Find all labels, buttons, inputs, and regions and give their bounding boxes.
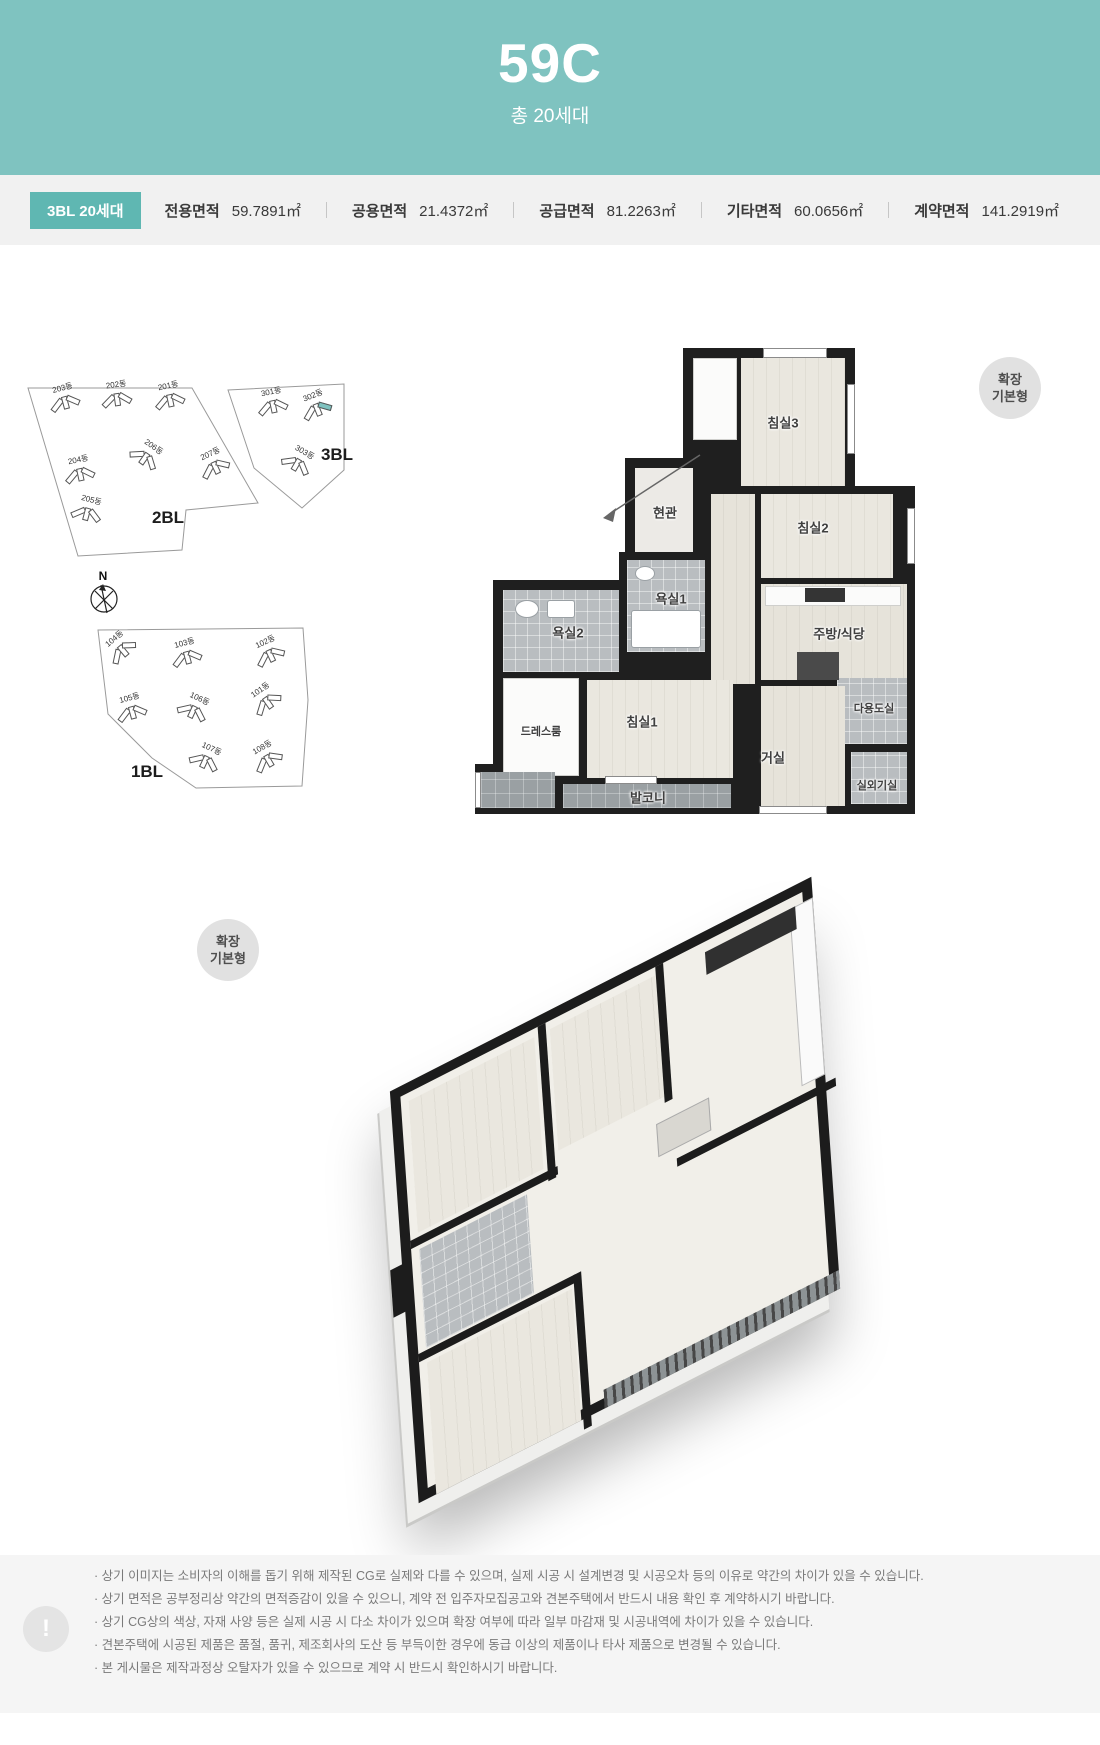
room-label-entrance: 현관 <box>653 503 677 522</box>
area-item: 기타면적 60.0656㎡ <box>727 200 863 221</box>
floor-plan-3d <box>330 930 890 1450</box>
area-item: 계약면적 141.2919㎡ <box>914 200 1059 221</box>
room-label-utility: 다용도실 <box>854 700 894 716</box>
iso-plane <box>390 877 840 1504</box>
building-104: 104동 <box>100 627 145 672</box>
area-label: 기타면적 <box>727 200 782 221</box>
room-label-living: 거실 <box>761 748 785 767</box>
building-202: 202동 <box>99 381 137 415</box>
building-206: 206동 <box>123 436 168 480</box>
unit-header: 59C 총 20세대 <box>0 0 1100 175</box>
building-203: 203동 <box>46 382 87 420</box>
room-bedroom1 <box>587 680 733 778</box>
unit-total-households: 총 20세대 <box>0 101 1100 128</box>
block-label-2bl: 2BL <box>152 508 184 528</box>
area-summary-bar: 3BL 20세대 전용면적 59.7891㎡ 공용면적 21.4372㎡ 공급면… <box>0 175 1100 245</box>
toilet <box>635 566 655 581</box>
disclaimer-footer: ! · 상기 이미지는 소비자의 이해를 돕기 위해 제작된 CG로 실제와 다… <box>0 1555 1100 1713</box>
window <box>759 806 827 814</box>
room-label-bedroom1: 침실1 <box>626 712 657 731</box>
disclaimer-note: · 상기 면적은 공부정리상 약간의 면적증감이 있을 수 있으니, 계약 전 … <box>94 1588 924 1611</box>
room-label-bedroom3: 침실3 <box>767 413 798 432</box>
building-101: 101동 <box>245 679 290 723</box>
iso-counter <box>705 906 797 975</box>
room-label-bedroom2: 침실2 <box>797 518 828 537</box>
window <box>907 508 915 564</box>
unit-type-title: 59C <box>0 0 1100 91</box>
building-205: 205동 <box>68 494 109 532</box>
room-label-kitchen: 주방/식당 <box>813 624 864 643</box>
divider <box>701 202 702 218</box>
room-label-bathroom1: 욕실1 <box>655 589 686 608</box>
area-item: 전용면적 59.7891㎡ <box>165 200 301 221</box>
building-108: 108동 <box>247 738 291 781</box>
building-204: 204동 <box>61 455 100 491</box>
building-107: 107동 <box>184 740 227 782</box>
building-103: 103동 <box>168 637 209 675</box>
building-302-highlighted: 302동 <box>297 388 340 429</box>
building-301: 301동 <box>254 387 293 423</box>
area-value: 21.4372㎡ <box>419 200 488 221</box>
building-201: 201동 <box>151 381 190 417</box>
area-label: 전용면적 <box>165 200 220 221</box>
window <box>847 384 855 454</box>
window <box>475 772 481 808</box>
compass-north-label: N <box>99 569 108 583</box>
disclaimer-note: · 견본주택에 시공된 제품은 품절, 품귀, 제조회사의 도산 등 부득이한 … <box>94 1634 924 1657</box>
iso-balcony-railing <box>604 1270 841 1408</box>
area-label: 공용면적 <box>352 200 407 221</box>
plan-type-badge-2d: 확장 기본형 <box>979 357 1041 419</box>
iso-entry-door <box>390 1263 407 1317</box>
floor-plan-2d: 침실3 현관 침실2 욕실1 욕실2 주방/식당 다용도실 드레스룸 침실1 거… <box>475 348 915 815</box>
block-label-3bl: 3BL <box>321 445 353 465</box>
closet-area <box>693 358 737 440</box>
room-label-dressroom: 드레스룸 <box>521 723 561 739</box>
toilet <box>515 600 539 618</box>
area-label: 계약면적 <box>914 200 969 221</box>
block-label-1bl: 1BL <box>131 762 163 782</box>
area-value: 59.7891㎡ <box>232 200 301 221</box>
unit-type-page: 59C 총 20세대 3BL 20세대 전용면적 59.7891㎡ 공용면적 2… <box>0 0 1100 1745</box>
divider <box>513 202 514 218</box>
area-item: 공용면적 21.4372㎡ <box>352 200 488 221</box>
balcony-door <box>605 776 657 784</box>
room-label-bathroom2: 욕실2 <box>552 623 583 642</box>
exclamation-icon: ! <box>23 1606 69 1652</box>
divider <box>326 202 327 218</box>
sink <box>547 600 575 618</box>
disclaimer-notes: · 상기 이미지는 소비자의 이해를 돕기 위해 제작된 CG로 실제와 다를 … <box>94 1565 924 1680</box>
site-outline-svg <box>0 0 1100 1745</box>
building-105: 105동 <box>113 692 154 730</box>
window <box>763 348 827 358</box>
disclaimer-note: · 상기 CG상의 색상, 자재 사양 등은 실제 시공 시 다소 차이가 있으… <box>94 1611 924 1634</box>
plan-type-badge-3d: 확장 기본형 <box>197 919 259 981</box>
building-303: 303동 <box>276 443 320 486</box>
bathtub <box>631 610 701 648</box>
area-value: 60.0656㎡ <box>794 200 863 221</box>
divider <box>888 202 889 218</box>
block-badge[interactable]: 3BL 20세대 <box>30 192 141 229</box>
building-102: 102동 <box>249 633 292 675</box>
hallway-floor <box>711 494 755 684</box>
compass-icon <box>91 584 117 613</box>
building-106: 106동 <box>172 690 215 732</box>
disclaimer-note: · 본 게시물은 제작과정상 오탈자가 있을 수 있으므로 계약 시 반드시 확… <box>94 1657 924 1680</box>
cooktop <box>805 588 845 602</box>
kitchen-island <box>797 652 839 680</box>
room-living <box>761 686 845 806</box>
building-207: 207동 <box>194 445 237 487</box>
area-value: 141.2919㎡ <box>981 200 1059 221</box>
iso-room <box>550 975 664 1150</box>
area-value: 81.2263㎡ <box>607 200 676 221</box>
disclaimer-note: · 상기 이미지는 소비자의 이해를 돕기 위해 제작된 CG로 실제와 다를 … <box>94 1565 924 1588</box>
area-label: 공급면적 <box>539 200 594 221</box>
room-label-outdoor-unit: 실외기실 <box>857 777 897 793</box>
area-item: 공급면적 81.2263㎡ <box>539 200 675 221</box>
balcony-corner <box>481 772 555 808</box>
room-label-balcony: 발코니 <box>630 788 666 807</box>
